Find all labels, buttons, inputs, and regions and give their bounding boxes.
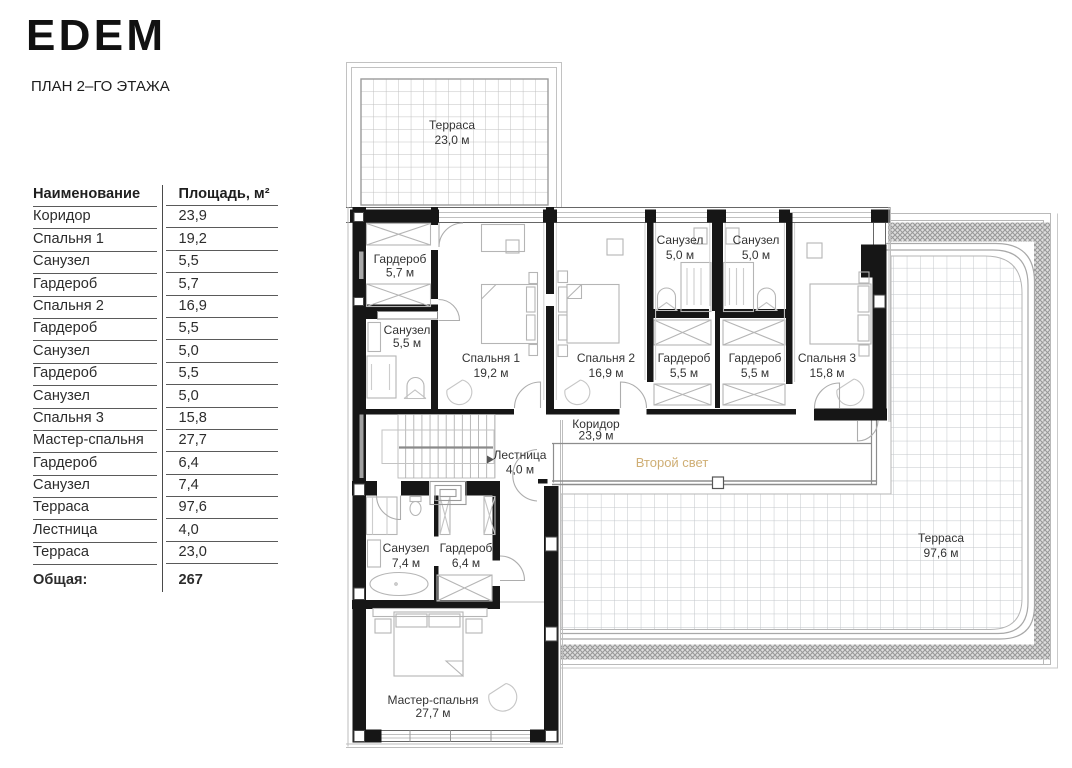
svg-text:Мастер-спальня: Мастер-спальня xyxy=(387,693,478,707)
svg-text:5,5 м: 5,5 м xyxy=(741,366,769,380)
svg-text:Спальня 1: Спальня 1 xyxy=(462,351,521,365)
svg-text:Санузел: Санузел xyxy=(384,323,431,337)
svg-text:5,7 м: 5,7 м xyxy=(386,266,414,280)
svg-text:Второй свет: Второй свет xyxy=(636,455,709,470)
svg-text:15,8 м: 15,8 м xyxy=(810,366,845,380)
svg-text:5,0 м: 5,0 м xyxy=(742,248,770,262)
svg-text:4,0 м: 4,0 м xyxy=(506,463,534,477)
svg-text:Гардероб: Гардероб xyxy=(729,351,782,365)
svg-text:6,4 м: 6,4 м xyxy=(452,556,480,570)
svg-text:Спальня 2: Спальня 2 xyxy=(577,351,636,365)
svg-text:Гардероб: Гардероб xyxy=(440,541,493,555)
svg-text:5,5 м: 5,5 м xyxy=(393,336,421,350)
svg-text:Лестница: Лестница xyxy=(494,448,547,462)
svg-text:Гардероб: Гардероб xyxy=(658,351,711,365)
svg-text:Спальня 3: Спальня 3 xyxy=(798,351,857,365)
svg-text:27,7 м: 27,7 м xyxy=(416,706,451,720)
svg-text:Гардероб: Гардероб xyxy=(374,252,427,266)
svg-text:Санузел: Санузел xyxy=(733,233,780,247)
svg-text:Терраса: Терраса xyxy=(429,118,475,132)
svg-text:Санузел: Санузел xyxy=(383,541,430,555)
svg-text:7,4 м: 7,4 м xyxy=(392,556,420,570)
svg-text:Терраса: Терраса xyxy=(918,531,964,545)
svg-text:16,9 м: 16,9 м xyxy=(589,366,624,380)
svg-text:19,2 м: 19,2 м xyxy=(474,366,509,380)
svg-text:23,0 м: 23,0 м xyxy=(435,133,470,147)
svg-text:97,6 м: 97,6 м xyxy=(924,546,959,560)
svg-text:23,9 м: 23,9 м xyxy=(579,429,614,443)
svg-text:5,5 м: 5,5 м xyxy=(670,366,698,380)
svg-text:Санузел: Санузел xyxy=(657,233,704,247)
svg-text:5,0 м: 5,0 м xyxy=(666,248,694,262)
